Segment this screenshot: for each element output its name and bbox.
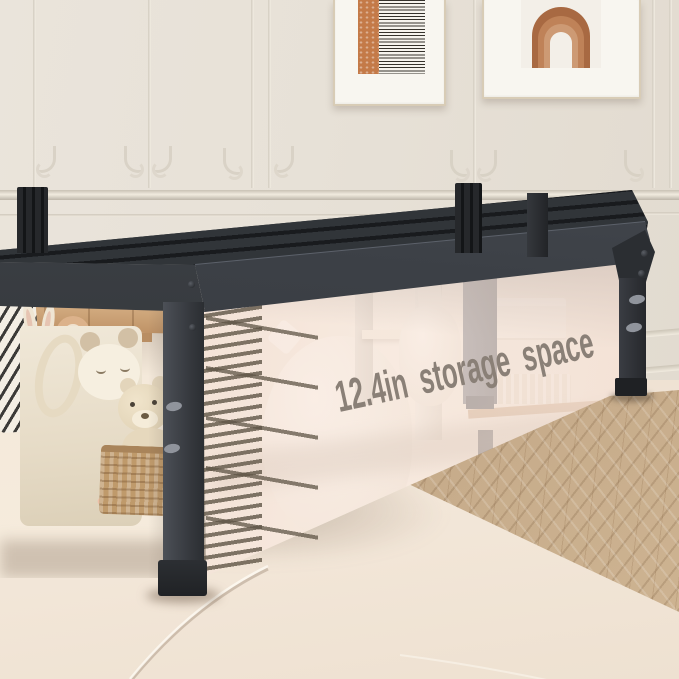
rivet — [641, 250, 648, 257]
bed-left-leg-foot — [158, 560, 207, 596]
bear-applique-ear — [118, 328, 138, 348]
bed-right-leg-foot — [615, 378, 647, 396]
headboard-bracket — [17, 187, 48, 253]
headboard-bracket — [527, 193, 548, 257]
teddy-eye — [130, 402, 135, 407]
rivet — [189, 324, 196, 331]
bear-applique-eye — [120, 364, 130, 372]
rivet — [638, 270, 645, 277]
product-photo-bed-frame-storage: 12.4in storage space — [0, 0, 679, 679]
ruler-major-lines — [206, 316, 318, 548]
bear-applique-eye — [96, 366, 106, 374]
rivet — [188, 281, 195, 288]
bed-left-leg — [163, 302, 204, 568]
headboard-bracket — [455, 183, 482, 253]
